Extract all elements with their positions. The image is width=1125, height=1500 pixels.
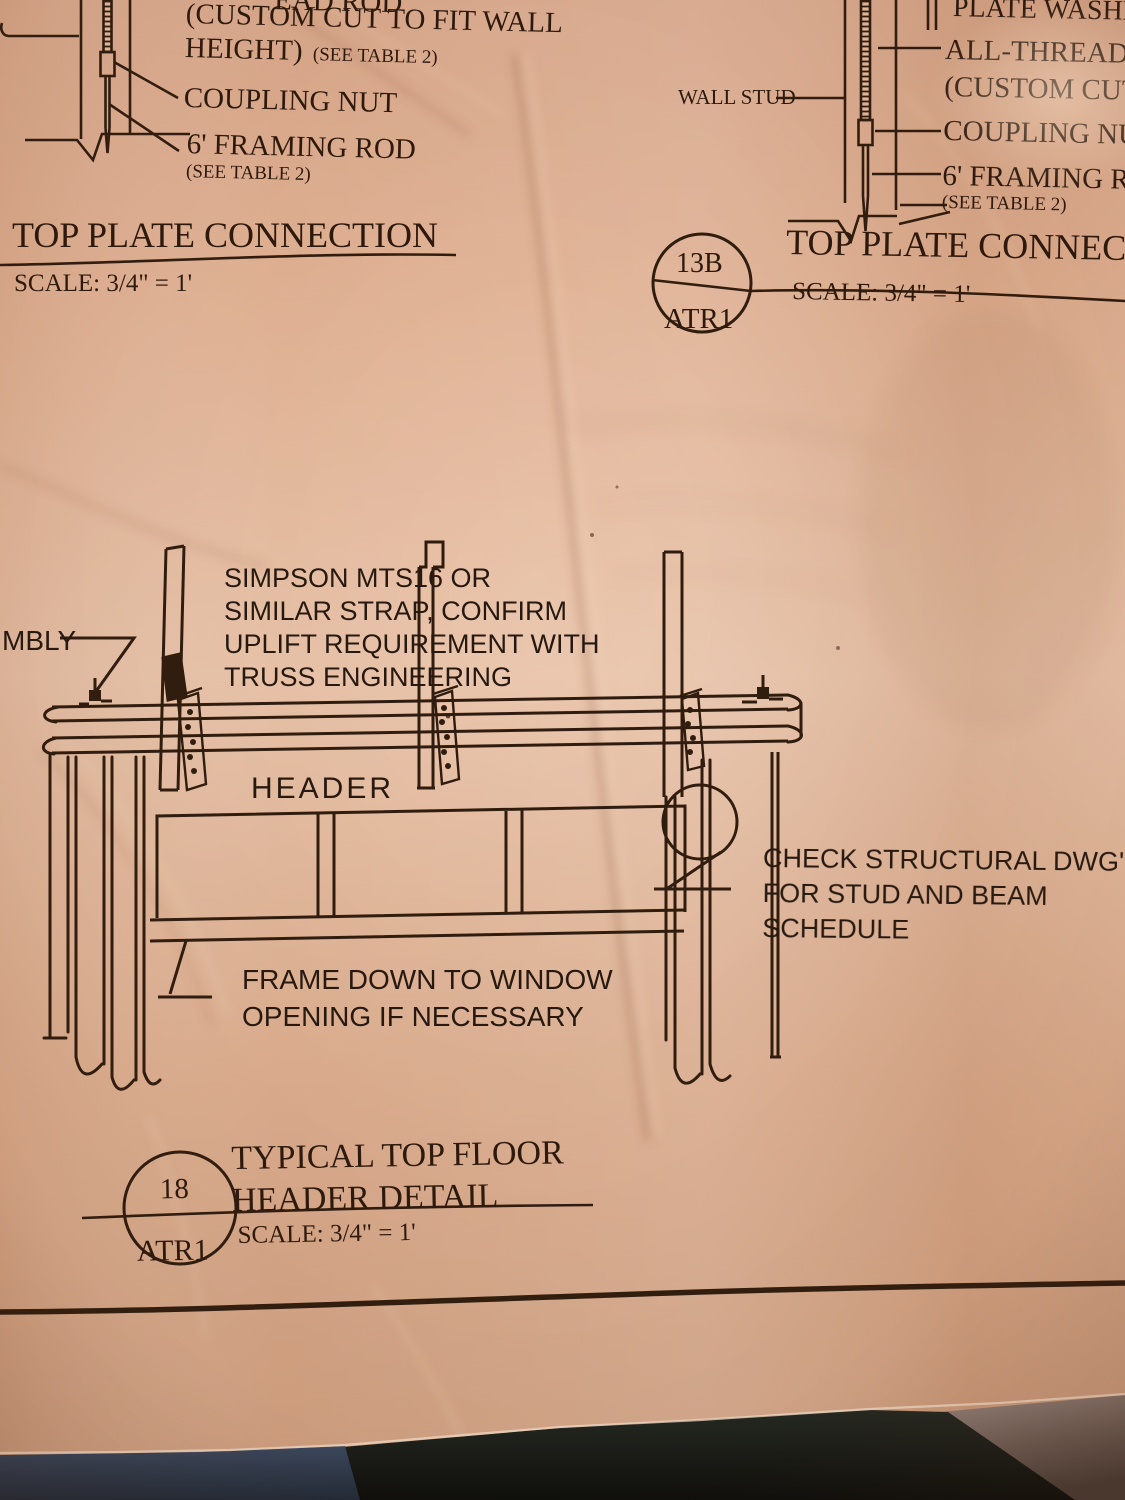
blueprint-sheet: EAD ROD (CUSTOM CUT TO FIT WALL HEIGHT) … [0,0,1125,1500]
vignette [0,0,1125,1500]
blueprint-photo: EAD ROD (CUSTOM CUT TO FIT WALL HEIGHT) … [0,0,1125,1500]
